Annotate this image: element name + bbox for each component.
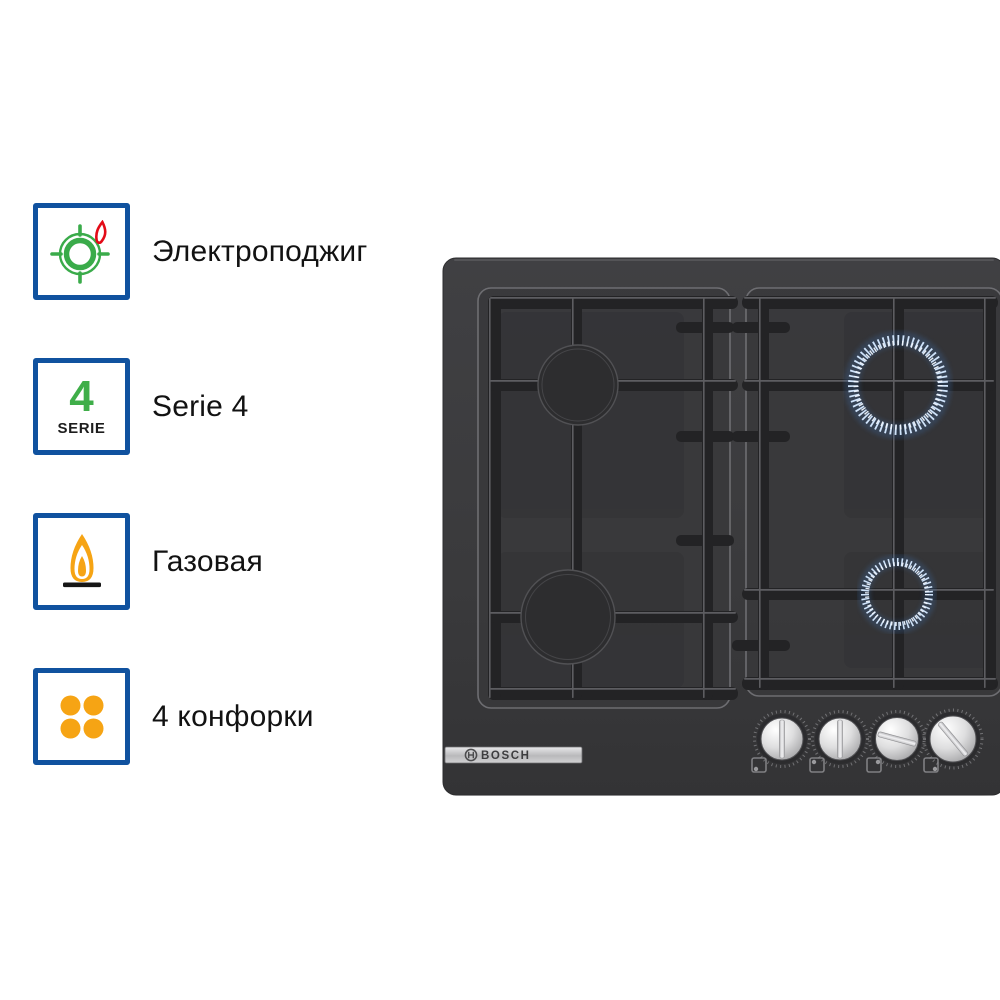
ignition-burner-icon (50, 220, 114, 284)
bosch-brand-text: BOSCH (481, 750, 531, 762)
serie-number: 4 (69, 376, 93, 418)
gas-flame-icon (50, 530, 114, 594)
feature-label-serie: Serie 4 (152, 390, 248, 424)
bosch-logo-strip: BOSCH (445, 747, 582, 763)
gas-hob-product-photo: BOSCH (440, 256, 1000, 798)
serie-caption: SERIE (57, 420, 105, 437)
feature-item-gas: Газовая (33, 513, 263, 610)
burners-badge (33, 668, 130, 765)
serie-badge: 4 SERIE (33, 358, 130, 455)
feature-label-ignition: Электроподжиг (152, 235, 367, 269)
feature-item-burners: 4 конфорки (33, 668, 314, 765)
gas-hob-illustration: BOSCH (440, 256, 1000, 798)
feature-label-burners: 4 конфорки (152, 700, 314, 734)
feature-item-ignition: Электроподжиг (33, 203, 367, 300)
four-burners-icon (50, 685, 114, 749)
ignition-badge (33, 203, 130, 300)
feature-item-serie: 4 SERIE Serie 4 (33, 358, 248, 455)
feature-label-gas: Газовая (152, 545, 263, 579)
gas-badge (33, 513, 130, 610)
burner-cap-front-left (521, 570, 615, 664)
burner-cap-back-left (538, 345, 618, 425)
